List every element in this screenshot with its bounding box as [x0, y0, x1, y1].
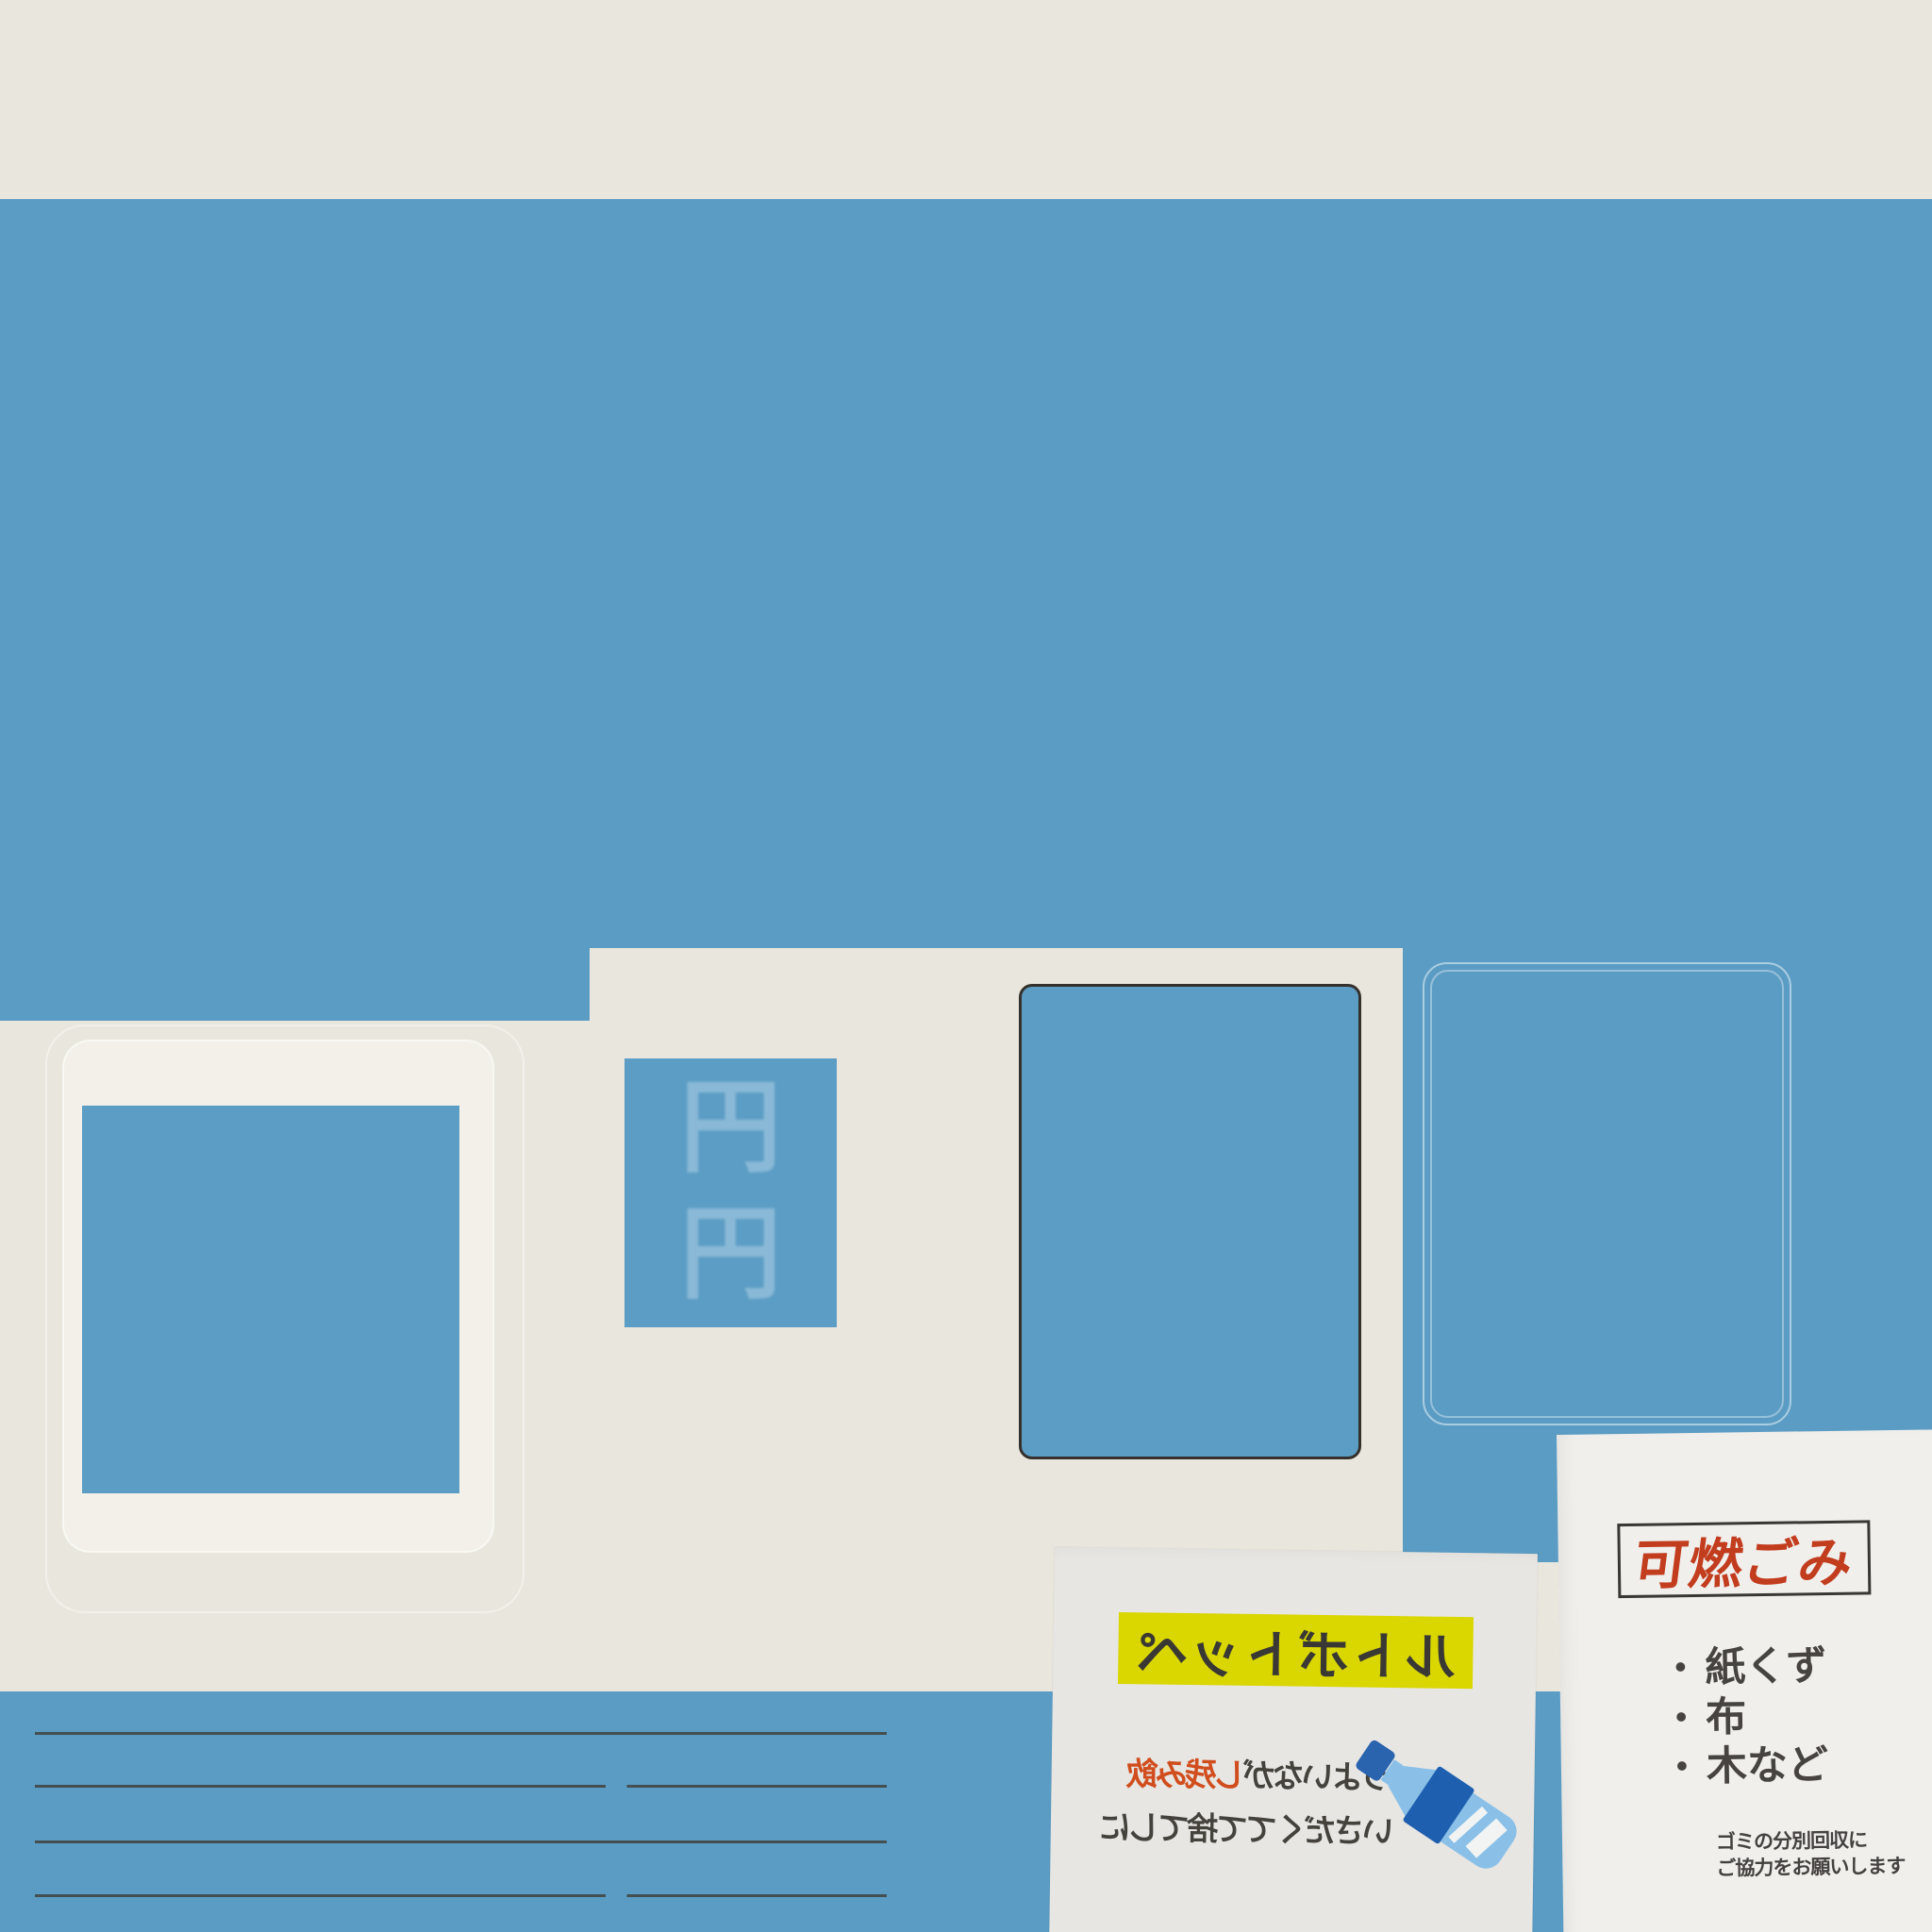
sheet-blue-panel: [82, 1106, 459, 1493]
base-rule-line: [35, 1785, 887, 1788]
chalk-outline-panel: [1423, 962, 1791, 1425]
burnable-item-label: 紙くず: [1705, 1643, 1827, 1690]
base-rule-line: [35, 1732, 887, 1735]
faded-marks-panel: 円円: [625, 1058, 837, 1327]
bullet-icon: ・: [1661, 1648, 1700, 1690]
pet-bottle-poster: ペットボトル 飲み残しがないよう にして捨ててください: [1048, 1547, 1538, 1932]
dark-framed-panel: [1019, 984, 1361, 1459]
burnable-footer-line1: ゴミの分別回収に: [1716, 1827, 1905, 1857]
chalk-outline-inner-line: [1430, 970, 1784, 1418]
pet-poster-banner-label: ペットボトル: [1134, 1610, 1457, 1690]
burnable-title: 可燃ごみ: [1630, 1519, 1858, 1599]
garbage-station-scene: 円円 ペットボトル 飲み残しがないよう にして捨ててください 可燃ごみ: [0, 0, 1932, 1932]
base-rule-line: [35, 1894, 887, 1897]
pet-poster-banner: ペットボトル: [1118, 1612, 1474, 1689]
blue-wall-band-left-step: [0, 947, 590, 1021]
base-rule-line: [35, 1840, 887, 1843]
burnable-title-box: 可燃ごみ: [1617, 1520, 1871, 1598]
burnable-footer: ゴミの分別回収に ご協力をお願いします: [1716, 1827, 1906, 1883]
faded-yen-marks-icon: 円円: [672, 1064, 789, 1317]
blue-wall-band: [0, 199, 1932, 948]
burnable-garbage-poster: 可燃ごみ ・紙くず ・布 ・木など ゴミの分別回収に ご協力をお願いします: [1557, 1429, 1932, 1932]
burnable-list-item: ・木など: [1662, 1732, 1828, 1792]
burnable-item-label: 木など: [1707, 1742, 1829, 1790]
pet-poster-note-highlight: 飲み残し: [1128, 1757, 1246, 1794]
bullet-icon: ・: [1663, 1747, 1702, 1790]
burnable-footer-line2: ご協力をお願いします: [1716, 1854, 1905, 1883]
